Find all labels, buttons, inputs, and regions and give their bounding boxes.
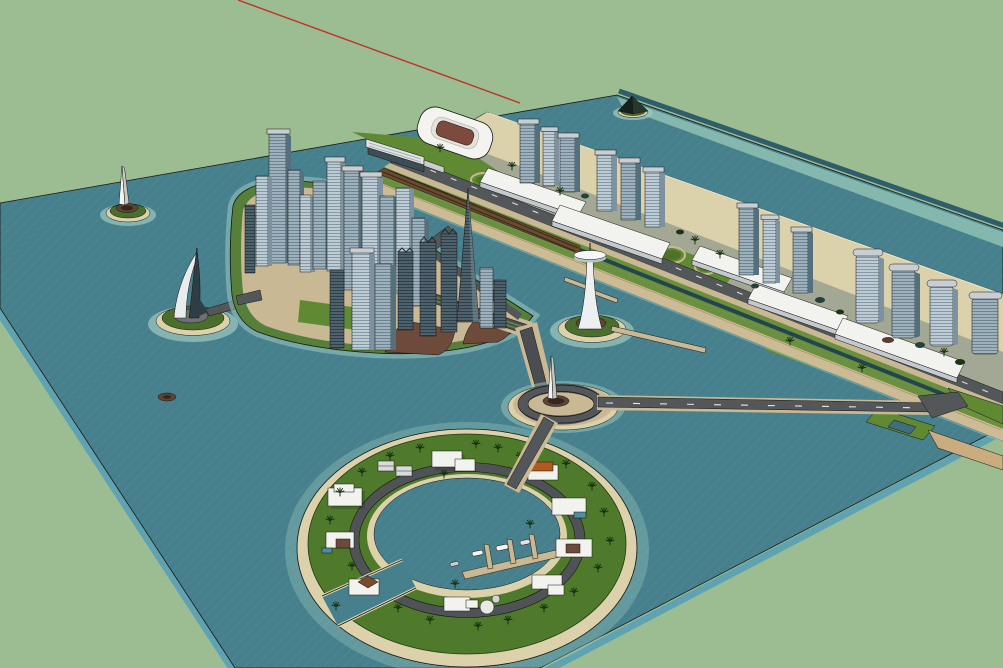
skyscraper	[889, 264, 920, 338]
skyscraper	[791, 227, 813, 293]
skyscraper	[541, 127, 559, 186]
skyscraper	[441, 229, 457, 332]
skyscraper	[325, 157, 345, 271]
skyscraper	[761, 215, 780, 283]
skyscraper	[420, 237, 436, 336]
skyscraper	[330, 270, 344, 348]
skyscraper	[518, 119, 540, 183]
water-fountain-base	[158, 393, 176, 401]
skyscraper	[375, 264, 396, 350]
skyscraper	[558, 133, 580, 192]
skyscraper	[245, 205, 255, 273]
model-viewport[interactable]	[0, 0, 1003, 668]
skyscraper	[256, 176, 272, 266]
skyscraper	[927, 280, 958, 346]
skyscraper	[595, 150, 617, 211]
villa	[328, 484, 365, 509]
skyscraper	[737, 203, 759, 275]
skyscraper	[643, 167, 665, 227]
skyscraper	[969, 292, 1002, 354]
villa	[349, 576, 379, 595]
ring-residential-island[interactable]	[285, 422, 649, 668]
skyscraper	[619, 158, 641, 220]
skyscraper	[480, 268, 493, 328]
villa	[556, 539, 592, 557]
skyscraper	[350, 248, 375, 350]
villa	[552, 498, 586, 518]
skyscraper	[398, 248, 413, 330]
skyscraper	[494, 280, 506, 328]
skyscraper	[853, 249, 884, 323]
